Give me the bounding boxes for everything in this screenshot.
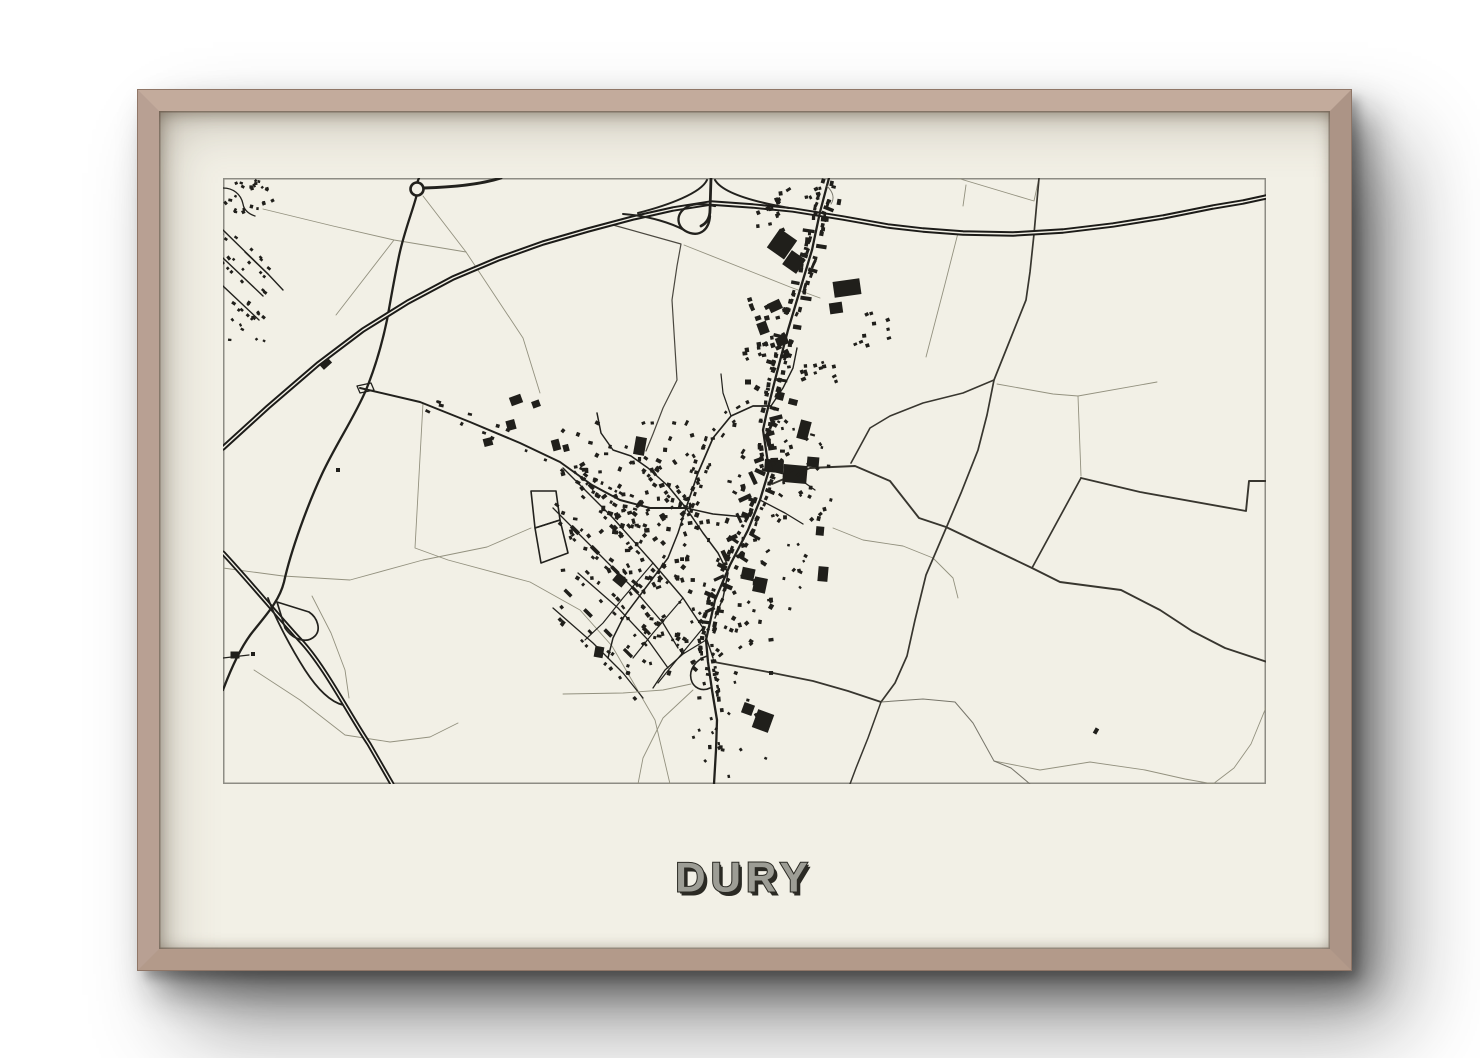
svg-text:DURY: DURY: [675, 854, 812, 901]
